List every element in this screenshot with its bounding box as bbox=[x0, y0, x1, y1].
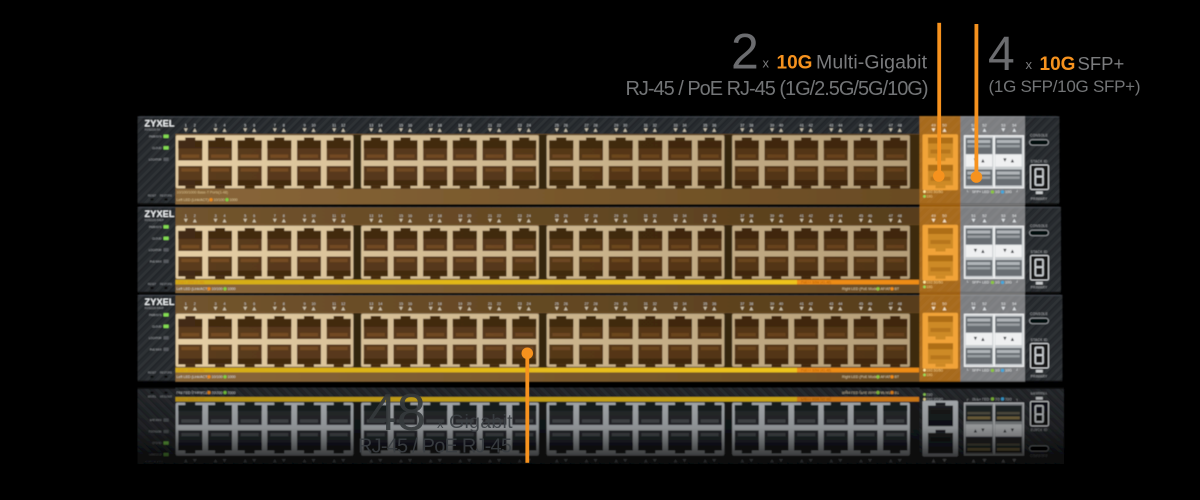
svg-text:42: 42 bbox=[809, 214, 813, 218]
svg-text:PWR/SYS: PWR/SYS bbox=[149, 225, 162, 229]
svg-text:10G: 10G bbox=[1005, 369, 1012, 373]
svg-text:STACK ID: STACK ID bbox=[1031, 250, 1048, 254]
svg-text:10G: 10G bbox=[927, 285, 934, 289]
svg-text:39: 39 bbox=[770, 123, 774, 127]
svg-text:25: 25 bbox=[555, 123, 559, 127]
svg-text:36: 36 bbox=[712, 302, 716, 306]
svg-text:17: 17 bbox=[429, 123, 433, 127]
svg-text:10G: 10G bbox=[1040, 54, 1076, 75]
svg-text:13: 13 bbox=[369, 302, 373, 306]
svg-text:CLOUD: CLOUD bbox=[152, 237, 161, 241]
svg-text:5: 5 bbox=[244, 302, 246, 306]
svg-text:10: 10 bbox=[311, 123, 315, 127]
svg-text:RESET: RESET bbox=[148, 283, 157, 286]
svg-text:10/2.5G/5G: 10/2.5G/5G bbox=[927, 280, 944, 284]
svg-text:34: 34 bbox=[682, 123, 686, 127]
svg-text:19: 19 bbox=[458, 123, 462, 127]
svg-text:13: 13 bbox=[369, 214, 373, 218]
svg-text:3: 3 bbox=[214, 214, 216, 218]
svg-text:1G: 1G bbox=[995, 369, 1000, 373]
svg-text:SFP+ LED :: SFP+ LED : bbox=[972, 190, 991, 194]
svg-text:1G: 1G bbox=[995, 190, 1000, 194]
svg-text:50: 50 bbox=[942, 301, 947, 306]
svg-text:26: 26 bbox=[564, 214, 568, 218]
svg-text:17: 17 bbox=[429, 302, 433, 306]
svg-text:2: 2 bbox=[194, 302, 196, 306]
svg-text:PoE+ 30W (1-48): PoE+ 30W (1-48) bbox=[178, 369, 204, 373]
svg-text:45: 45 bbox=[859, 214, 863, 218]
svg-text:34: 34 bbox=[682, 302, 686, 306]
svg-text:10/100: 10/100 bbox=[214, 198, 225, 202]
svg-text:BT: BT bbox=[895, 375, 900, 379]
svg-text:24: 24 bbox=[527, 123, 531, 127]
svg-text:14: 14 bbox=[378, 302, 382, 306]
svg-text:42: 42 bbox=[809, 123, 813, 127]
svg-text:36: 36 bbox=[712, 123, 716, 127]
svg-text:1: 1 bbox=[185, 123, 187, 127]
svg-text:40: 40 bbox=[779, 302, 783, 306]
svg-text:3: 3 bbox=[214, 123, 216, 127]
svg-text:28: 28 bbox=[593, 214, 597, 218]
svg-text:28: 28 bbox=[593, 123, 597, 127]
svg-text:41: 41 bbox=[800, 214, 804, 218]
svg-text:29: 29 bbox=[614, 302, 618, 306]
svg-text:45: 45 bbox=[859, 123, 863, 127]
svg-text:1G: 1G bbox=[995, 281, 1000, 285]
svg-text:10/2.5G/5G: 10/2.5G/5G bbox=[927, 190, 944, 194]
svg-text:22: 22 bbox=[497, 123, 501, 127]
svg-text:11: 11 bbox=[332, 214, 336, 218]
svg-text:ZYXEL: ZYXEL bbox=[145, 297, 175, 307]
svg-text:15: 15 bbox=[399, 302, 403, 306]
svg-text:8: 8 bbox=[283, 214, 285, 218]
svg-text:49: 49 bbox=[931, 122, 936, 127]
svg-text:26: 26 bbox=[564, 302, 568, 306]
svg-text:38: 38 bbox=[749, 302, 753, 306]
svg-text:27: 27 bbox=[584, 302, 588, 306]
svg-text:x: x bbox=[763, 56, 770, 71]
svg-text:4: 4 bbox=[223, 123, 225, 127]
svg-text:6: 6 bbox=[253, 214, 255, 218]
svg-text:PWR/SYS: PWR/SYS bbox=[149, 313, 162, 317]
svg-text:33: 33 bbox=[673, 302, 677, 306]
svg-text:RESET: RESET bbox=[148, 372, 157, 375]
svg-text:10: 10 bbox=[311, 302, 315, 306]
svg-text:PRIMARY: PRIMARY bbox=[1031, 374, 1048, 378]
svg-text:30: 30 bbox=[623, 214, 627, 218]
svg-text:44: 44 bbox=[838, 214, 842, 218]
svg-text:49: 49 bbox=[931, 213, 936, 218]
svg-text:PoE MAX: PoE MAX bbox=[150, 348, 162, 352]
svg-text:16: 16 bbox=[408, 214, 412, 218]
svg-text:37: 37 bbox=[740, 302, 744, 306]
svg-text:13: 13 bbox=[369, 123, 373, 127]
svg-text:8: 8 bbox=[283, 123, 285, 127]
svg-text:38: 38 bbox=[749, 214, 753, 218]
svg-text:21: 21 bbox=[488, 214, 492, 218]
svg-text:CONSOLE: CONSOLE bbox=[1030, 312, 1049, 316]
svg-text:RESET: RESET bbox=[148, 194, 157, 197]
svg-text:PRIMARY: PRIMARY bbox=[1031, 286, 1048, 290]
svg-text:35: 35 bbox=[703, 214, 707, 218]
svg-text:41: 41 bbox=[800, 302, 804, 306]
svg-text:10/100: 10/100 bbox=[212, 375, 223, 379]
svg-text:52: 52 bbox=[982, 122, 987, 127]
svg-text:15: 15 bbox=[399, 123, 403, 127]
svg-text:10G: 10G bbox=[927, 195, 934, 199]
svg-text:16: 16 bbox=[408, 123, 412, 127]
svg-text:3: 3 bbox=[214, 302, 216, 306]
svg-text:14: 14 bbox=[378, 123, 382, 127]
svg-text:16: 16 bbox=[408, 302, 412, 306]
svg-text:48: 48 bbox=[898, 302, 902, 306]
svg-text:30: 30 bbox=[623, 123, 627, 127]
svg-text:AF/AT: AF/AT bbox=[881, 287, 892, 291]
svg-text:24: 24 bbox=[527, 302, 531, 306]
svg-text:RJ-45 / PoE RJ-45 (1G/2.5G/5G/: RJ-45 / PoE RJ-45 (1G/2.5G/5G/10G) bbox=[626, 78, 929, 100]
svg-text:11: 11 bbox=[332, 123, 336, 127]
svg-text:Multi-Gigabit: Multi-Gigabit bbox=[816, 52, 928, 74]
svg-text:46: 46 bbox=[868, 214, 872, 218]
svg-text:32: 32 bbox=[653, 123, 657, 127]
svg-text:52: 52 bbox=[982, 301, 987, 306]
svg-text:46: 46 bbox=[868, 302, 872, 306]
svg-text:23: 23 bbox=[518, 302, 522, 306]
svg-text:┘: ┘ bbox=[1015, 189, 1019, 194]
svg-text:1000: 1000 bbox=[228, 287, 236, 291]
svg-text:PoE MAX: PoE MAX bbox=[150, 260, 162, 264]
svg-text:42: 42 bbox=[809, 302, 813, 306]
svg-text:46: 46 bbox=[868, 123, 872, 127]
svg-text:7: 7 bbox=[274, 302, 276, 306]
svg-text:47: 47 bbox=[889, 214, 893, 218]
svg-text:6: 6 bbox=[253, 123, 255, 127]
svg-text:14: 14 bbox=[378, 214, 382, 218]
svg-text:1000: 1000 bbox=[228, 375, 236, 379]
svg-text:51: 51 bbox=[971, 213, 976, 218]
svg-text:44: 44 bbox=[838, 302, 842, 306]
svg-text:10/100: 10/100 bbox=[212, 287, 223, 291]
svg-text:SFP+ LED :: SFP+ LED : bbox=[972, 369, 991, 373]
svg-text:43: 43 bbox=[829, 302, 833, 306]
svg-text:LOCATOR: LOCATOR bbox=[149, 158, 162, 162]
svg-text:Right LED (PoE Mode): Right LED (PoE Mode) bbox=[842, 375, 879, 379]
svg-text:┘: ┘ bbox=[1015, 368, 1019, 373]
svg-text:SFP+ LED :: SFP+ LED : bbox=[972, 281, 991, 285]
svg-text:27: 27 bbox=[584, 214, 588, 218]
svg-text:53: 53 bbox=[1001, 122, 1006, 127]
svg-text:25: 25 bbox=[555, 214, 559, 218]
svg-text:RESTORE: RESTORE bbox=[160, 194, 172, 197]
svg-text:23: 23 bbox=[518, 214, 522, 218]
svg-text:Right LED (PoE Mode): Right LED (PoE Mode) bbox=[842, 287, 879, 291]
svg-text:19: 19 bbox=[458, 214, 462, 218]
svg-text:1000: 1000 bbox=[230, 198, 238, 202]
svg-text:4: 4 bbox=[223, 302, 225, 306]
svg-text:54: 54 bbox=[1012, 301, 1017, 306]
svg-text:31: 31 bbox=[644, 302, 648, 306]
svg-text:10G: 10G bbox=[777, 53, 813, 74]
svg-text:27: 27 bbox=[584, 123, 588, 127]
svg-text:29: 29 bbox=[614, 214, 618, 218]
svg-text:6: 6 bbox=[253, 302, 255, 306]
svg-text:CLOUD: CLOUD bbox=[152, 146, 161, 150]
svg-text:7: 7 bbox=[274, 123, 276, 127]
svg-text:LOCATOR: LOCATOR bbox=[149, 248, 162, 252]
svg-text:50: 50 bbox=[942, 213, 947, 218]
svg-text:43: 43 bbox=[829, 214, 833, 218]
svg-text:37: 37 bbox=[740, 214, 744, 218]
svg-text:25: 25 bbox=[555, 302, 559, 306]
svg-text:4: 4 bbox=[223, 214, 225, 218]
svg-text:ZYXEL: ZYXEL bbox=[145, 209, 175, 219]
svg-text:34: 34 bbox=[682, 214, 686, 218]
svg-text:5: 5 bbox=[244, 214, 246, 218]
svg-text:XGS2220-54: XGS2220-54 bbox=[145, 128, 161, 132]
svg-text:1: 1 bbox=[185, 214, 187, 218]
svg-text:22: 22 bbox=[497, 214, 501, 218]
svg-text:RJ-45 / PoE RJ-45: RJ-45 / PoE RJ-45 bbox=[358, 436, 512, 458]
svg-text:CONSOLE: CONSOLE bbox=[1030, 224, 1049, 228]
svg-text:21: 21 bbox=[488, 123, 492, 127]
svg-text:2: 2 bbox=[731, 24, 759, 80]
svg-text:53: 53 bbox=[1001, 213, 1006, 218]
svg-text:10/100/1000 Base-T Ports(1-48): 10/100/1000 Base-T Ports(1-48) bbox=[177, 191, 228, 195]
svg-text:12: 12 bbox=[341, 302, 345, 306]
svg-text:SFP+: SFP+ bbox=[1078, 53, 1125, 74]
svg-text:20: 20 bbox=[467, 123, 471, 127]
svg-text:52: 52 bbox=[982, 213, 987, 218]
svg-text:23: 23 bbox=[518, 123, 522, 127]
svg-text:40: 40 bbox=[779, 214, 783, 218]
svg-text:48: 48 bbox=[898, 214, 902, 218]
svg-text:10G: 10G bbox=[927, 373, 934, 377]
svg-text:35: 35 bbox=[703, 302, 707, 306]
svg-text:9: 9 bbox=[303, 123, 305, 127]
svg-text:47: 47 bbox=[889, 302, 893, 306]
svg-text:PoE++ 60W (41-48): PoE++ 60W (41-48) bbox=[801, 369, 831, 373]
svg-text:49: 49 bbox=[931, 301, 936, 306]
svg-text:7: 7 bbox=[274, 214, 276, 218]
svg-text:Gigabit: Gigabit bbox=[449, 411, 513, 433]
svg-text:BT: BT bbox=[895, 287, 900, 291]
svg-text:48: 48 bbox=[898, 123, 902, 127]
svg-text:PWR/SYS: PWR/SYS bbox=[149, 135, 162, 139]
svg-text:Left LED (Link/ACT):: Left LED (Link/ACT): bbox=[177, 287, 210, 291]
svg-text:1: 1 bbox=[185, 302, 187, 306]
svg-text:9: 9 bbox=[303, 302, 305, 306]
svg-text:43: 43 bbox=[829, 123, 833, 127]
svg-text:28: 28 bbox=[593, 302, 597, 306]
svg-text:44: 44 bbox=[838, 123, 842, 127]
svg-text:24: 24 bbox=[527, 214, 531, 218]
svg-text:AF/AT: AF/AT bbox=[881, 375, 892, 379]
svg-text:33: 33 bbox=[673, 214, 677, 218]
svg-text:51: 51 bbox=[971, 301, 976, 306]
svg-text:10/2.5G/5G: 10/2.5G/5G bbox=[927, 368, 944, 372]
svg-text:53: 53 bbox=[1001, 301, 1006, 306]
svg-text:47: 47 bbox=[889, 123, 893, 127]
svg-text:37: 37 bbox=[740, 123, 744, 127]
svg-text:33: 33 bbox=[673, 123, 677, 127]
svg-text:39: 39 bbox=[770, 302, 774, 306]
svg-text:18: 18 bbox=[438, 214, 442, 218]
svg-text:10G: 10G bbox=[1005, 281, 1012, 285]
svg-text:RESTORE: RESTORE bbox=[160, 283, 172, 286]
svg-text:11: 11 bbox=[332, 302, 336, 306]
svg-text:15: 15 bbox=[399, 214, 403, 218]
svg-text:STACK ID: STACK ID bbox=[1031, 160, 1048, 164]
svg-text:31: 31 bbox=[644, 214, 648, 218]
svg-text:36: 36 bbox=[712, 214, 716, 218]
svg-text:29: 29 bbox=[614, 123, 618, 127]
svg-text:22: 22 bbox=[497, 302, 501, 306]
svg-text:45: 45 bbox=[859, 302, 863, 306]
svg-text:RESTORE: RESTORE bbox=[160, 372, 172, 375]
svg-text:54: 54 bbox=[1012, 213, 1017, 218]
svg-text:x: x bbox=[437, 416, 444, 431]
svg-text:21: 21 bbox=[488, 302, 492, 306]
svg-text:(1G SFP/10G SFP+): (1G SFP/10G SFP+) bbox=[989, 77, 1141, 96]
svg-text:10: 10 bbox=[311, 214, 315, 218]
svg-text:32: 32 bbox=[653, 214, 657, 218]
svg-text:CLOUD: CLOUD bbox=[152, 325, 161, 329]
svg-text:19: 19 bbox=[458, 302, 462, 306]
svg-text:PoE+ 30W (1-48): PoE+ 30W (1-48) bbox=[178, 281, 204, 285]
svg-text:┘: ┘ bbox=[1015, 280, 1019, 285]
svg-text:40: 40 bbox=[779, 123, 783, 127]
svg-text:26: 26 bbox=[564, 123, 568, 127]
svg-text:Left LED (Link/ACT):: Left LED (Link/ACT): bbox=[177, 198, 210, 202]
svg-text:XGS2220-54EP: XGS2220-54EP bbox=[145, 218, 164, 222]
svg-text:20: 20 bbox=[467, 214, 471, 218]
svg-text:8: 8 bbox=[283, 302, 285, 306]
svg-text:XGS2220-54HP: XGS2220-54HP bbox=[145, 306, 164, 310]
svg-text:30: 30 bbox=[623, 302, 627, 306]
svg-text:PRIMARY: PRIMARY bbox=[1031, 197, 1048, 201]
svg-text:ZYXEL: ZYXEL bbox=[145, 118, 175, 128]
svg-text:50: 50 bbox=[942, 122, 947, 127]
svg-text:2: 2 bbox=[194, 123, 196, 127]
svg-text:12: 12 bbox=[341, 214, 345, 218]
svg-text:39: 39 bbox=[770, 214, 774, 218]
svg-text:2: 2 bbox=[194, 214, 196, 218]
svg-text:4: 4 bbox=[988, 28, 1015, 81]
svg-text:31: 31 bbox=[644, 123, 648, 127]
svg-text:20: 20 bbox=[467, 302, 471, 306]
svg-text:CONSOLE: CONSOLE bbox=[1030, 134, 1049, 138]
svg-text:Left LED (Link/ACT):: Left LED (Link/ACT): bbox=[177, 375, 210, 379]
svg-text:18: 18 bbox=[438, 302, 442, 306]
svg-text:17: 17 bbox=[429, 214, 433, 218]
svg-text:STACK ID: STACK ID bbox=[1031, 338, 1048, 342]
svg-text:32: 32 bbox=[653, 302, 657, 306]
svg-text:9: 9 bbox=[303, 214, 305, 218]
svg-text:5: 5 bbox=[244, 123, 246, 127]
svg-text:54: 54 bbox=[1012, 122, 1017, 127]
svg-text:48: 48 bbox=[368, 384, 426, 442]
svg-text:35: 35 bbox=[703, 123, 707, 127]
svg-text:38: 38 bbox=[749, 123, 753, 127]
svg-text:12: 12 bbox=[341, 123, 345, 127]
svg-text:18: 18 bbox=[438, 123, 442, 127]
svg-text:LOCATOR: LOCATOR bbox=[149, 336, 162, 340]
svg-text:10G: 10G bbox=[1005, 190, 1012, 194]
svg-text:x: x bbox=[1026, 57, 1033, 72]
svg-text:41: 41 bbox=[800, 123, 804, 127]
svg-text:PoE++ 60W (41-48): PoE++ 60W (41-48) bbox=[801, 281, 831, 285]
